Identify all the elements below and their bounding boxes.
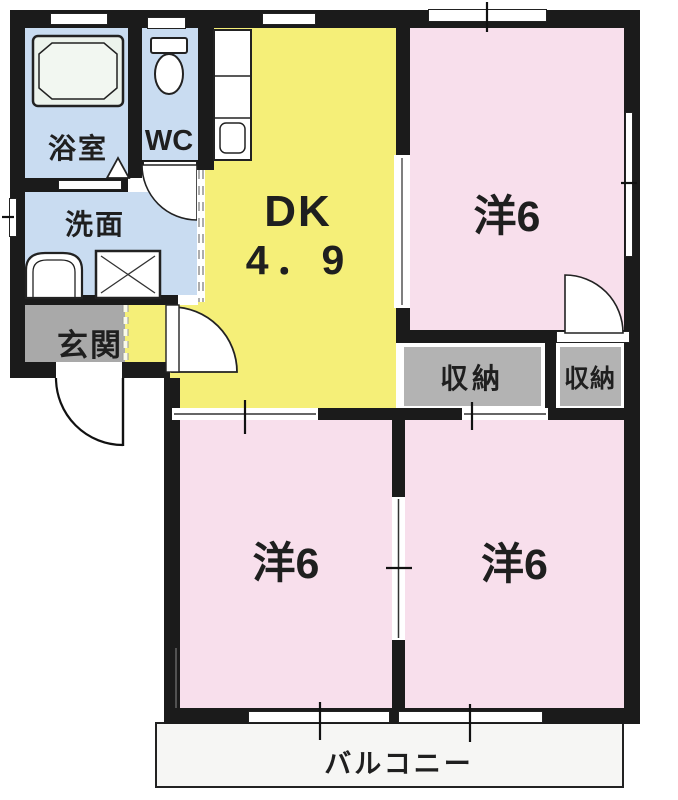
opening-dk-sw-slider [172,408,318,420]
label-entrance: 玄関 [40,324,140,360]
entrance-door [56,378,123,446]
wall-left-upper [10,10,25,378]
threshold-wc-door [143,161,197,170]
room-fill-dk-west [198,170,214,410]
window-dk-top [262,13,316,25]
label-storage-a: 収納 [402,361,542,393]
label-bedroom-se: 洋6 [405,535,624,587]
label-dk-size: 4．9 [218,236,378,284]
label-wc: WC [139,124,199,158]
threshold-bath-door [58,180,122,190]
wall-left-lower [164,378,180,710]
room-fill-bedroom-ne [410,28,624,330]
threshold-ne-door [556,331,630,343]
window-bedroom-ne-top [428,9,547,22]
label-bathroom: 浴室 [28,130,128,164]
label-dk-name: DK [218,188,378,236]
floor-plan: 浴室 WC 洗面 玄関 DK 4．9 洋6 洋6 洋6 収納 収納 バルコニー [0,0,678,800]
label-washroom: 洗面 [45,206,145,240]
label-dk: DK 4．9 [218,188,378,284]
window-washroom-left [9,198,17,237]
label-storage-b: 収納 [556,362,624,392]
opening-storage-slider [462,408,548,420]
opening-rooms-slider [392,497,405,640]
window-bathroom-top [50,13,108,25]
window-balcony-left [248,711,390,723]
window-balcony-right [398,711,543,723]
wall-washroom-bottom [17,295,178,305]
label-bedroom-sw: 洋6 [180,534,392,586]
wall-wc-dk [198,25,214,170]
window-wc-top [147,17,186,29]
window-bedroom-ne-right [625,112,633,257]
label-balcony: バルコニー [279,746,519,776]
wall-storage-mid [545,343,556,408]
label-bedroom-ne: 洋6 [396,187,618,239]
